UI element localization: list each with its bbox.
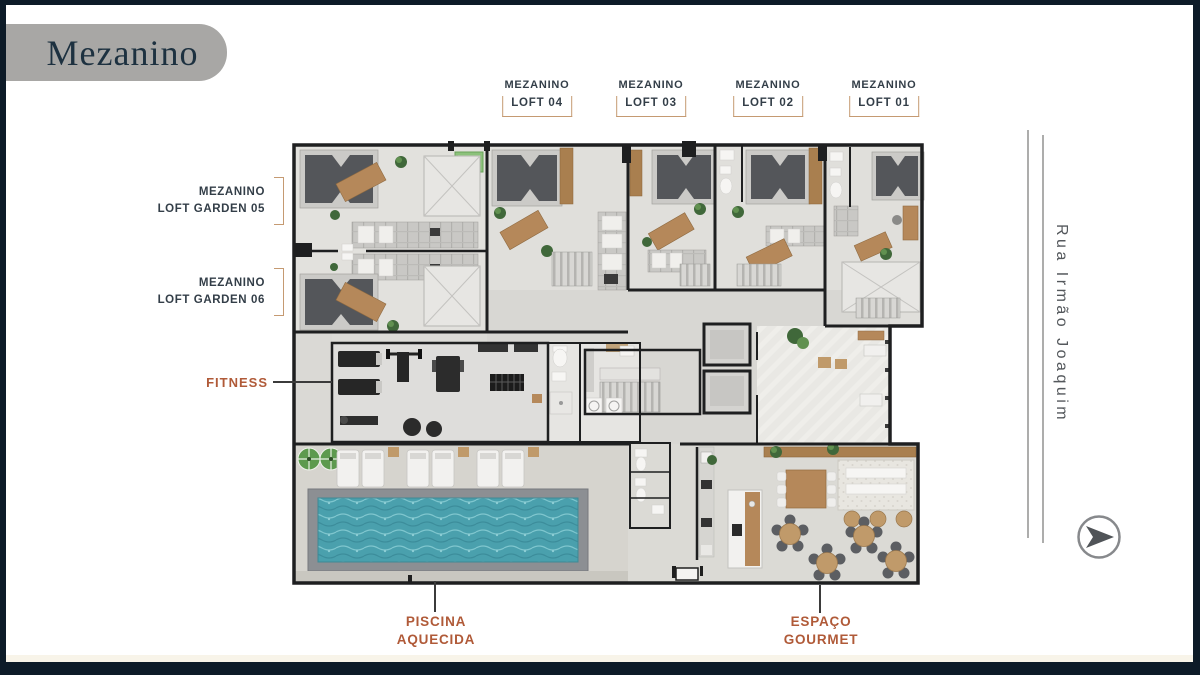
callout-gourmet-line2: GOURMET [784,631,859,649]
callout-loft-02-line1: MEZANINO [733,79,803,92]
callout-loft-02-line2: LOFT 02 [733,96,803,117]
callout-pool: PISCINA AQUECIDA [397,613,475,648]
street-divider-line [1042,135,1044,543]
direction-arrow-icon [1076,514,1122,560]
callout-loft-04: MEZANINO LOFT 04 [502,79,572,117]
callout-garden-06-line2: LOFT GARDEN 06 [158,292,265,309]
gourmet-lead-line [819,585,821,613]
callout-loft-04-line2: LOFT 04 [502,96,572,117]
callout-bracket [274,268,284,316]
callout-loft-03-line2: LOFT 03 [616,96,686,117]
callout-loft-garden-05: MEZANINO LOFT GARDEN 05 [158,177,284,225]
frame-top [0,0,1200,5]
street-name: Rua Irmão Joaquim [1052,224,1070,464]
callout-loft-02: MEZANINO LOFT 02 [733,79,803,117]
callout-garden-05-line1: MEZANINO [158,184,265,201]
callout-gourmet-line1: ESPAÇO [784,613,859,631]
page-title: Mezanino [47,32,199,74]
callout-loft-03-line1: MEZANINO [616,79,686,92]
callout-garden-05-line2: LOFT GARDEN 05 [158,201,265,218]
callout-pool-line2: AQUECIDA [397,631,475,649]
lounge [838,460,914,527]
callout-loft-01-line2: LOFT 01 [849,96,919,117]
callout-loft-garden-06: MEZANINO LOFT GARDEN 06 [158,268,284,316]
floorplan-slide: Mezanino MEZANINO LOFT 04 MEZANINO LOFT … [0,0,1200,675]
callout-garden-06-line1: MEZANINO [158,275,265,292]
callout-fitness: FITNESS [206,375,268,390]
frame-bottom [0,662,1200,675]
floor-title-badge: Mezanino [6,24,227,81]
kitchen-island [728,490,762,568]
dining-table [777,470,836,508]
callout-loft-03: MEZANINO LOFT 03 [616,79,686,117]
frame-left [0,0,6,675]
callout-loft-01-line1: MEZANINO [849,79,919,92]
terrace-floor [757,326,890,444]
pool-lead-line [434,581,436,612]
frame-right [1193,0,1200,675]
callout-bracket [274,177,284,225]
callout-gourmet: ESPAÇO GOURMET [784,613,859,648]
callout-loft-04-line1: MEZANINO [502,79,572,92]
fitness-lead-line [273,381,332,383]
callout-loft-01: MEZANINO LOFT 01 [849,79,919,117]
frame-accent-strip [6,655,1193,662]
callout-pool-line1: PISCINA [397,613,475,631]
swimming-pool [308,489,588,571]
street-divider-line [1027,130,1029,538]
floor-plan-rendering [0,0,1200,675]
sun-loungers [337,447,539,487]
